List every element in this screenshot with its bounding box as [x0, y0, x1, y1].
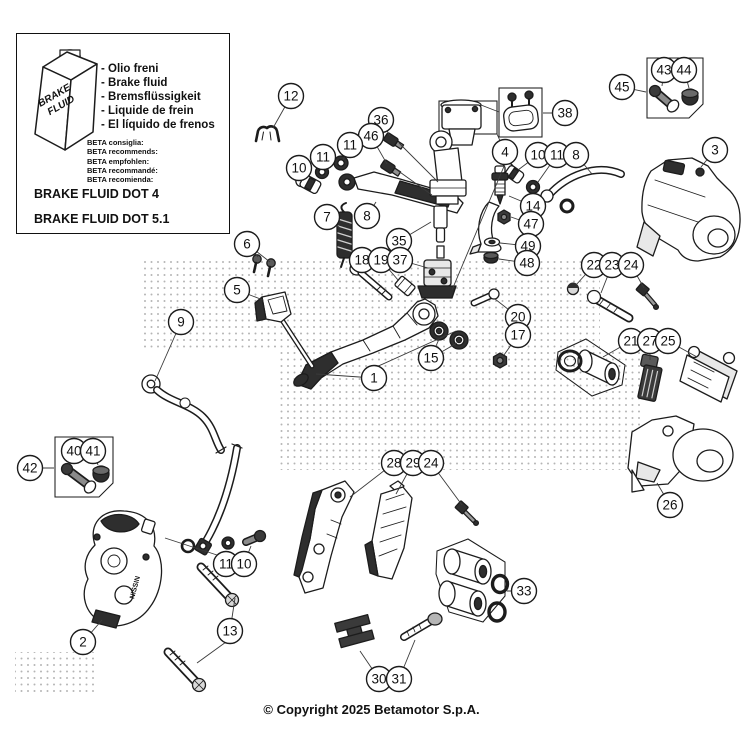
part-brake-pads-25 — [680, 347, 737, 403]
part-bleeder-24-front — [455, 501, 478, 526]
callout-number: 48 — [519, 256, 534, 271]
callout-8: 8 — [564, 143, 589, 168]
text-line: - Bremsflüssigkeit — [101, 90, 215, 104]
part-nut-17 — [494, 353, 507, 368]
part-banjo-bolt-10-front — [246, 531, 266, 543]
callout-7: 7 — [315, 205, 340, 230]
part-clip-12 — [256, 126, 279, 141]
callout-44: 44 — [672, 58, 697, 83]
callout-number: 43 — [656, 63, 671, 78]
callout-number: 26 — [662, 498, 677, 513]
callout-number: 30 — [371, 672, 386, 687]
part-piston-kit-33 — [439, 549, 508, 621]
part-brake-pads-29 — [365, 481, 412, 579]
callout-number: 9 — [177, 315, 185, 330]
part-front-hose — [194, 444, 242, 556]
callout-9: 9 — [169, 310, 194, 335]
text-line: BETA recommandé: — [87, 166, 158, 175]
part-reservoir-cap-38 — [503, 91, 540, 132]
parts-diagram-page: NISSIN — [0, 0, 743, 743]
part-bolt-43 — [650, 86, 682, 115]
part-cap-44 — [682, 89, 698, 105]
callout-number: 18 — [354, 253, 369, 268]
callout-number: 25 — [660, 334, 675, 349]
brake-fluid-dot4-label: BRAKE FLUID DOT 4 — [34, 187, 159, 201]
callout-12: 12 — [279, 84, 304, 109]
part-nut-47 — [498, 210, 510, 224]
callout-number: 24 — [423, 456, 439, 471]
callout-number: 11 — [343, 138, 357, 153]
part-caliper-bracket-26 — [628, 416, 733, 492]
callout-number: 45 — [614, 80, 629, 95]
beta-recommendation-list: BETA consiglia:BETA recommends:BETA empf… — [87, 138, 158, 184]
callout-number: 12 — [283, 89, 298, 104]
callout-31: 31 — [387, 667, 412, 692]
callout-1: 1 — [362, 366, 387, 391]
callout-10: 10 — [232, 552, 257, 577]
callout-number: 33 — [516, 584, 531, 599]
part-front-caliper-2: NISSIN — [84, 511, 161, 628]
callout-48: 48 — [515, 251, 540, 276]
part-master-cylinder-4 — [430, 100, 481, 204]
callout-number: 35 — [391, 234, 406, 249]
callout-number: 23 — [604, 258, 619, 273]
callout-number: 38 — [557, 106, 572, 121]
fluid-name-list: - Olio freni- Brake fluid- Bremsflüssigk… — [101, 62, 215, 132]
part-washer-11-front-b — [222, 537, 234, 549]
text-line: BETA consiglia: — [87, 138, 158, 147]
callout-number: 19 — [373, 253, 388, 268]
callout-25: 25 — [656, 329, 681, 354]
text-line: BETA recomienda: — [87, 175, 158, 184]
callout-3: 3 — [703, 138, 728, 163]
part-rear-hose-9 — [142, 375, 226, 453]
callout-number: 10 — [291, 161, 306, 176]
callout-33: 33 — [512, 579, 537, 604]
part-rear-hose-8 — [541, 170, 621, 212]
part-bolt-40 — [62, 464, 98, 496]
copyright-line: © Copyright 2025 Betamotor S.p.A. — [0, 702, 743, 717]
callout-4: 4 — [493, 140, 518, 165]
callout-2: 2 — [71, 630, 96, 655]
part-pad-pin-31 — [404, 613, 442, 637]
leader-line — [481, 105, 499, 112]
text-line: BETA empfohlen: — [87, 157, 158, 166]
callout-number: 21 — [623, 334, 638, 349]
part-rear-caliper-3 — [637, 158, 740, 261]
callout-number: 3 — [711, 143, 719, 158]
callout-number: 24 — [623, 258, 639, 273]
callout-number: 2 — [79, 635, 87, 650]
callout-number: 8 — [572, 148, 580, 163]
leader-line — [197, 642, 226, 663]
callout-17: 17 — [506, 323, 531, 348]
callout-number: 28 — [386, 456, 401, 471]
part-screw-36 — [383, 132, 405, 150]
callout-number: 11 — [550, 148, 564, 163]
callout-number: 6 — [243, 237, 251, 252]
callout-41: 41 — [81, 439, 106, 464]
callout-number: 1 — [370, 371, 378, 386]
callout-number: 17 — [510, 328, 525, 343]
callout-number: 11 — [316, 150, 330, 165]
callout-number: 42 — [22, 461, 37, 476]
text-line: - Liquide de frein — [101, 104, 215, 118]
callout-number: 47 — [523, 217, 538, 232]
callout-24: 24 — [619, 253, 644, 278]
callout-24: 24 — [419, 451, 444, 476]
text-line: - Olio freni — [101, 62, 215, 76]
brake-fluid-info-box: BRAKE FLUID - Olio freni- Brake fluid- B… — [16, 33, 230, 234]
callout-26: 26 — [658, 493, 683, 518]
callout-number: 10 — [530, 148, 545, 163]
callout-10: 10 — [287, 156, 312, 181]
callout-8: 8 — [355, 204, 380, 229]
callout-number: 41 — [85, 444, 100, 459]
part-washer-11-rear — [527, 181, 540, 194]
part-front-bracket-28 — [294, 481, 354, 593]
callout-11: 11 — [338, 133, 363, 158]
part-cap-41 — [93, 466, 109, 482]
callout-42: 42 — [18, 456, 43, 481]
part-clevis-37 — [418, 260, 456, 298]
callout-38: 38 — [553, 101, 578, 126]
text-line: BETA recommends: — [87, 147, 158, 156]
part-pushrod-35 — [434, 206, 447, 258]
callout-number: 40 — [66, 444, 81, 459]
callout-6: 6 — [235, 232, 260, 257]
callout-13: 13 — [218, 619, 243, 644]
callout-number: 37 — [392, 253, 407, 268]
callout-number: 4 — [501, 145, 509, 160]
callout-number: 15 — [423, 351, 438, 366]
callout-number: 8 — [363, 209, 371, 224]
callout-11: 11 — [311, 145, 336, 170]
text-line: - El líquido de frenos — [101, 118, 215, 132]
callout-number: 5 — [233, 283, 241, 298]
callout-47: 47 — [519, 212, 544, 237]
part-pad-spring-30 — [335, 615, 374, 648]
brake-fluid-dot51-label: BRAKE FLUID DOT 5.1 — [34, 212, 169, 226]
part-bleeder-24-rear — [636, 283, 658, 310]
callout-number: 7 — [323, 210, 331, 225]
callout-number: 31 — [391, 672, 406, 687]
callout-number: 44 — [676, 63, 692, 78]
callout-15: 15 — [419, 346, 444, 371]
part-washer-49 — [485, 238, 500, 246]
callout-number: 10 — [236, 557, 251, 572]
callout-number: 46 — [363, 129, 378, 144]
text-line: - Brake fluid — [101, 76, 215, 90]
part-nut-48 — [484, 253, 498, 264]
callout-37: 37 — [388, 248, 413, 273]
callout-45: 45 — [610, 75, 635, 100]
callout-5: 5 — [225, 278, 250, 303]
callout-number: 13 — [222, 624, 237, 639]
